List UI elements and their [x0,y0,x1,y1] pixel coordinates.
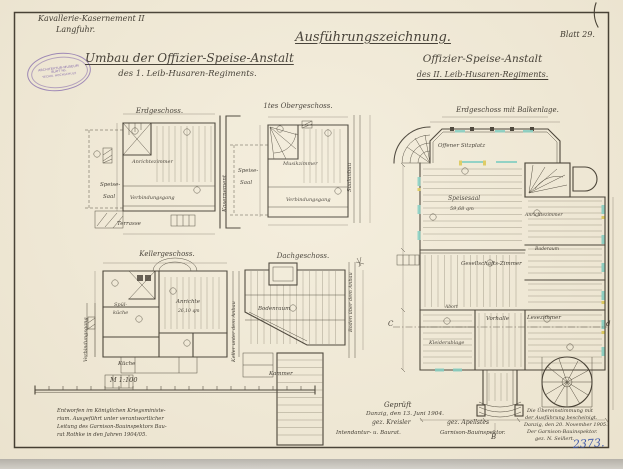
plan-title-dachgeschoss: Dachgeschoss. [258,252,348,260]
note-checked-date: Danzig, den 13. Juni 1904. [366,411,444,418]
title-left-line1: Umbau der Offizier-Speise-Anstalt [85,52,290,66]
room-label-verbindungsgang-eg: Verbindungsgang [130,196,175,202]
stamp-text-middle: BLATT No. [38,68,79,77]
room-label-kueche2-kg: küche [113,311,128,317]
note-cert-line1: Die Übereinstimmung mit [527,409,593,415]
plan-hauptplan-lines [393,117,613,435]
side-label-saalanbau-og: Saalanbau [347,163,353,192]
plan-title-erdgeschoss: Erdgeschoss. [112,107,207,115]
signature-2-role: Garnison-Bauinspektor. [440,430,506,436]
main-title-text: Ausführungszeichnung. [295,30,451,45]
project-line1: Kavallerie-Kasernement II [38,14,145,23]
title-right-line2-text: des II. Leib-Husaren-Regiments. [417,70,549,79]
room-label-saal-eg: Saal [103,194,115,200]
title-right-line1: Offizier-Speise-Anstalt [415,53,550,65]
room-label-anrichtezimmer: Anrichtezimmer [525,213,563,218]
note-designed-line3: Leitung des Garnison-Bauinspektors Bau- [57,425,167,431]
plan-title-hauptplan: Erdgeschoss mit Balkenlage. [435,106,580,114]
room-label-verbindungsgang-og: Verbindungsgang [286,198,331,204]
main-title: Ausführungszeichnung. [288,31,458,46]
room-area-speisesaal: 59,68 qm [450,207,474,213]
room-label-kueche-kg: Küche [118,361,135,367]
side-label-kasernement-eg: Kasernement [222,175,228,212]
plan-title-obergeschoss: 1tes Obergeschoss. [248,102,348,110]
scale-label: M 1:100 [110,377,137,384]
archive-number: 2373. [573,437,605,451]
pen-stroke [594,3,598,27]
note-designed-line4: rat Rothke in den Jahren 1904/05. [57,433,147,439]
note-cert-line3: Danzig, den 20. November 1905. [524,423,608,429]
side-label-verbindungsgang-kg: Verbindungsgang [84,317,90,362]
room-label-kammer-dg: Kammer [269,371,293,377]
stamp-text-top: ARCHITEKTUR-MUSEUM [38,64,79,73]
room-area-anrichte-kg: 26,10 qm [178,309,199,314]
room-label-musikzimmer-og: Musikzimmer [283,162,318,168]
scale-bar [35,386,315,394]
plan-dachgeschoss-lines [243,257,364,445]
room-label-speisesaal: Speisesaal [448,196,480,203]
signature-1: gez. Kreisler [372,420,411,427]
note-cert-line2: der Ausführung bescheinigt. [525,416,597,422]
room-label-speise-og: Speise- [238,168,258,174]
room-label-lesezimmer: Lesezimmer [527,315,561,321]
side-label-boden-dg: Boden über dem Anbau [349,272,355,332]
room-label-baderaum: Baderaum [535,247,559,252]
room-label-gesellschaftszimmer: Gesellschafts-Zimmer [461,261,522,267]
sheet-number: Blatt 29. [560,30,595,39]
room-label-terrasse-eg: Terrasse [117,221,141,227]
title-left-line1-text: Umbau der Offizier-Speise-Anstalt [85,51,294,65]
title-left-line2: des 1. Leib-Husaren-Regiments. [95,70,280,80]
room-label-speise-eg: Speise- [100,182,120,188]
room-label-anrichte-kg: Anrichte [176,299,200,305]
section-letter-c: C [388,320,393,328]
plan-title-kellergeschoss: Kellergeschoss. [112,250,222,258]
scan-edge [0,459,623,469]
room-label-vorhalle: Vorhalle [486,316,509,322]
plan-kellergeschoss-lines [87,258,239,388]
room-label-spuel-kg: Spül- [114,303,127,309]
signature-2: gez. Apellstes [447,420,489,427]
room-label-bodenraum-dg: Bodenraum [258,306,290,312]
note-designed-line1: Entworfen im Königlichen Kriegsministe- [57,409,165,415]
room-label-sitzplatz: Offener Sitzplatz [438,143,485,149]
plan-erdgeschoss-lines [85,114,240,234]
side-label-keller-kg: Keller unter dem Anbau [232,301,238,362]
note-cert-line4: Der Garnison-Bauinspektor. [527,430,598,436]
project-line2: Langfuhr. [56,25,95,34]
room-label-saal-og: Saal [240,180,252,186]
title-right-line2: des II. Leib-Husaren-Regiments. [415,70,550,79]
stamp-text-bottom: TECHN. HOCHSCHULE [39,72,80,81]
signature-1-role: Intendantur- u. Baurat. [336,430,401,436]
room-label-abort: Abort [445,305,458,310]
note-cert-line5: gez. N. Seillert. [535,437,574,443]
note-designed-line2: rium. Ausgeführt unter verantwortlicher [57,417,164,423]
room-label-anrichtezimmer-eg: Anrichtezimmer [132,160,173,166]
room-label-kleiderablage: Kleiderablage [429,341,464,347]
section-letter-d: d [606,320,610,328]
note-checked-title: Geprüft [384,401,411,409]
drawing-sheet: Kavallerie-Kasernement II Langfuhr. ARCH… [0,0,623,469]
